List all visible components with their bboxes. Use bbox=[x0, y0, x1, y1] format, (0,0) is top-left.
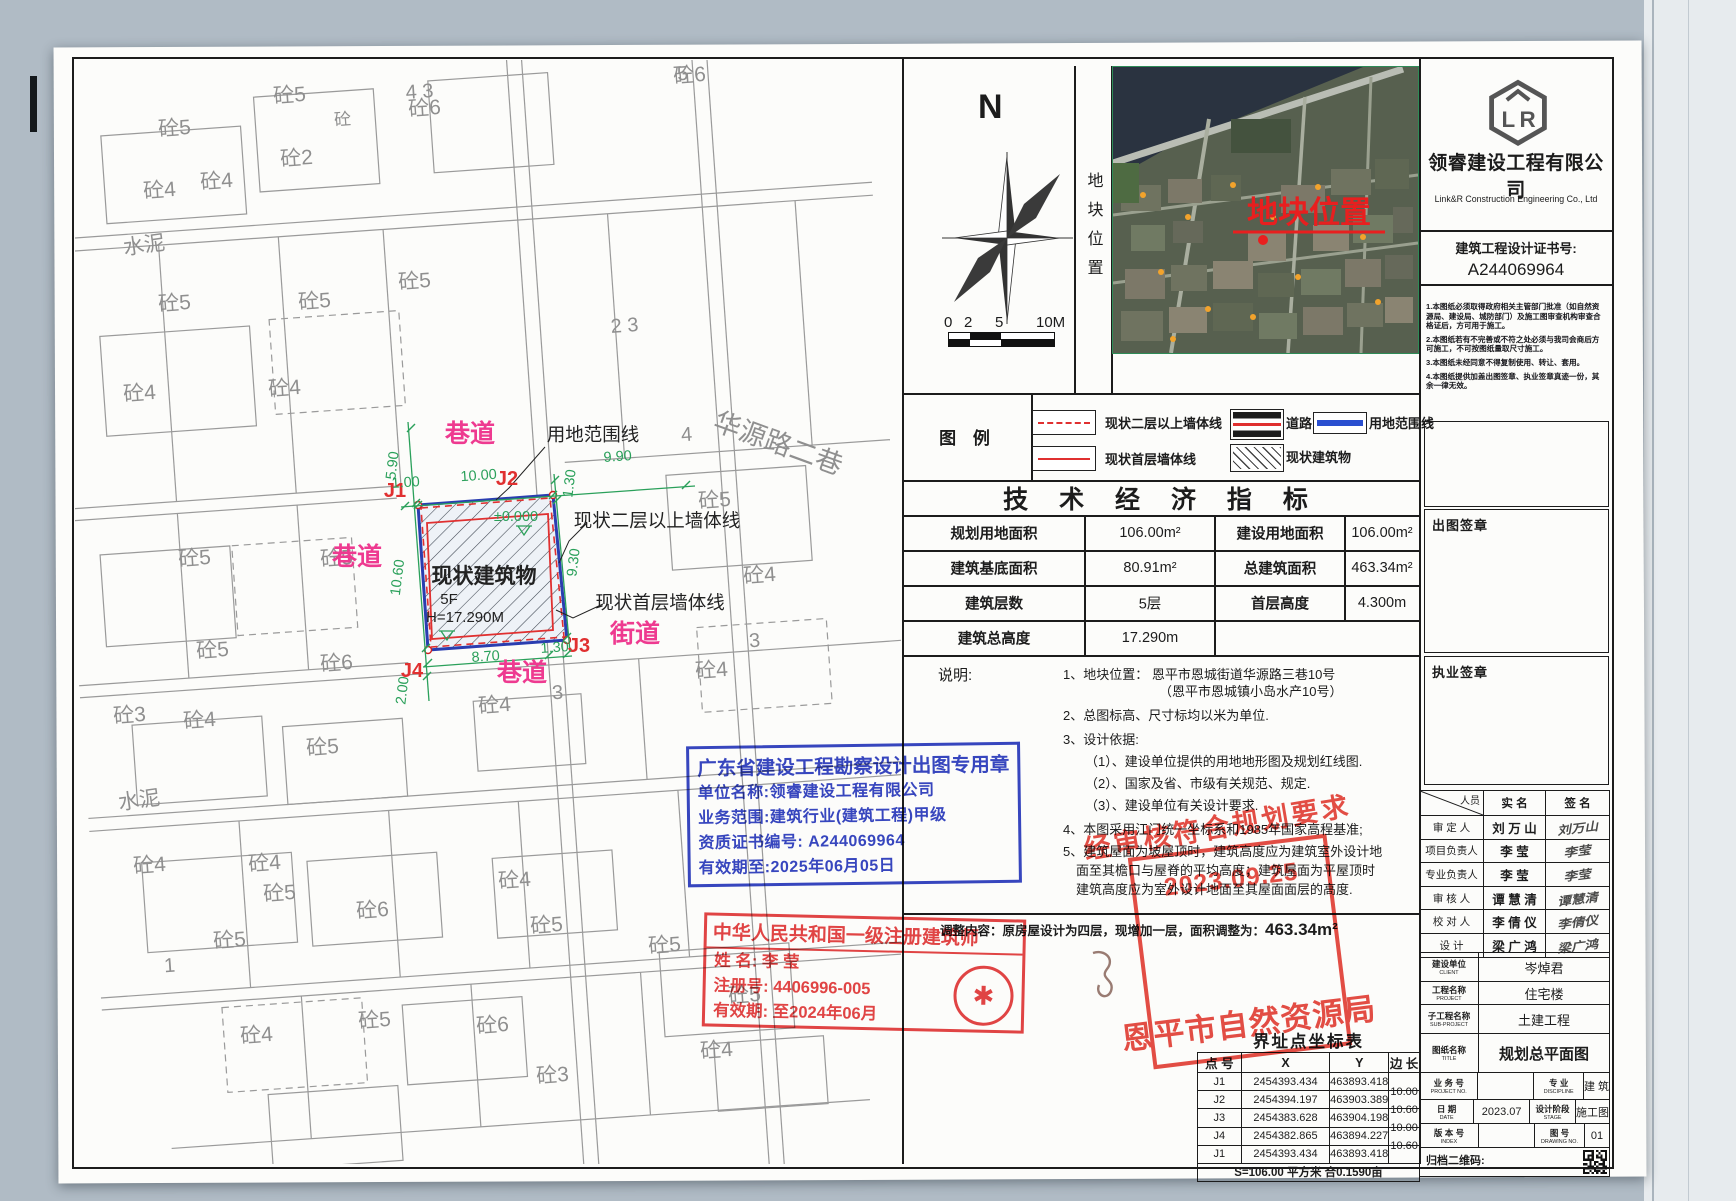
plot-label: 砼4 bbox=[477, 693, 512, 718]
blank-box bbox=[1424, 421, 1609, 507]
zhiye-seal-box: 执业签章 bbox=[1424, 656, 1609, 785]
plot-label: 水泥 bbox=[117, 786, 162, 815]
general-note: 3.本图纸未经同意不得复制使用、转让、套用。 bbox=[1426, 358, 1606, 368]
plot-label: 砼5 bbox=[157, 291, 191, 316]
coord-footer: S=106.00 平方米 合0.1590亩 bbox=[1198, 1164, 1419, 1181]
plot-label: 砼4 bbox=[132, 853, 167, 878]
coord-cell: J1 bbox=[1198, 1146, 1241, 1163]
coord-cell: J1 bbox=[1198, 1073, 1241, 1090]
coord-cell: 2454393.434 bbox=[1241, 1073, 1329, 1090]
indicator-label: 建设用地面积 bbox=[1237, 522, 1324, 543]
coord-header: 边 长 bbox=[1388, 1053, 1419, 1072]
coord-footer-row: S=106.00 平方米 合0.1590亩 bbox=[1198, 1163, 1419, 1181]
indicator-value: 17.290m bbox=[1122, 630, 1178, 646]
coord-cell: 463893.418 bbox=[1329, 1146, 1388, 1163]
plot-label: 砼5 bbox=[357, 1008, 391, 1033]
grid-line bbox=[1420, 230, 1612, 232]
design-note-line: （2）、国家及省、市级有关规范、规定. bbox=[1085, 775, 1419, 792]
legend-swatch-red-solid bbox=[1032, 446, 1096, 471]
legend-label: 现状首层墙体线 bbox=[1105, 449, 1196, 468]
indicator-label: 建筑总高度 bbox=[958, 627, 1031, 648]
design-note-line: （1）、建设单位提供的用地地形图及规划红线图. bbox=[1085, 753, 1419, 770]
svg-text:L: L bbox=[1502, 107, 1516, 132]
personnel-signature: 刘万山 bbox=[1545, 815, 1609, 839]
general-note: 1.本图纸必须取得政府相关主管部门批准（如自然资源局、建设局、城防部门）及施工图… bbox=[1426, 302, 1606, 331]
plot-label: 砼5 bbox=[397, 269, 431, 294]
street-label: 街道 bbox=[609, 619, 660, 648]
coord-cell: 463893.418 bbox=[1329, 1073, 1388, 1090]
plot-label: 砼5 bbox=[177, 546, 211, 571]
boundary-point-label: J2 bbox=[496, 468, 518, 490]
legend-label: 用地范围线 bbox=[1369, 413, 1434, 432]
coord-cell: J3 bbox=[1198, 1109, 1241, 1126]
callout-label: 用地范围线 bbox=[547, 424, 640, 445]
notes-label: 说明: bbox=[938, 664, 972, 685]
personnel-name: 李 莹 bbox=[1483, 839, 1545, 863]
plot-label: 砼3 bbox=[535, 1063, 569, 1088]
plot-label: 砼5 bbox=[157, 116, 191, 141]
general-notes: 1.本图纸必须取得政府相关主管部门批准（如自然资源局、建设局、城防部门）及施工图… bbox=[1426, 302, 1606, 395]
indicator-label: 规划用地面积 bbox=[951, 522, 1038, 543]
indicator-label: 总建筑面积 bbox=[1244, 557, 1317, 578]
personnel-name: 李 倩 仪 bbox=[1483, 909, 1545, 933]
cert-number: A244069964 bbox=[1420, 258, 1612, 282]
indicator-value: 5层 bbox=[1139, 592, 1162, 613]
personnel-name: 刘 万 山 bbox=[1483, 815, 1545, 839]
dimension-tick bbox=[682, 481, 690, 489]
plot-label: 砼4 bbox=[267, 376, 302, 401]
company-name: 领睿建设工程有限公司 bbox=[1420, 162, 1612, 188]
plot-label: 砼4 bbox=[694, 658, 729, 683]
legend-swatch-blue-line bbox=[1313, 412, 1367, 434]
dimension-label: 9.90 bbox=[603, 448, 632, 466]
indicator-label: 首层高度 bbox=[1251, 592, 1309, 613]
plot-label: 砼6 bbox=[319, 651, 353, 676]
plot-label: 砼6 bbox=[475, 1013, 509, 1038]
indicator-value: 463.34m² bbox=[1351, 560, 1412, 576]
coord-row: J12454393.434463893.418 bbox=[1198, 1072, 1419, 1090]
title-block-row: 图纸名称TITLE 规划总平面图 bbox=[1420, 1033, 1609, 1072]
street-label: 巷道 bbox=[331, 542, 382, 571]
architect-stamp: 中华人民共和国一级注册建筑师 姓 名: 李 莹注册号: 4406996-005有… bbox=[702, 912, 1027, 1033]
plot-label: 4 bbox=[680, 424, 693, 447]
chutu-seal-box: 出图签章 bbox=[1424, 509, 1609, 653]
building-name-label: 现状建筑物 bbox=[432, 564, 537, 588]
grid-line bbox=[903, 620, 1420, 622]
callout-label: 现状二层以上墙体线 bbox=[574, 510, 741, 531]
general-note: 4.本图纸提供加盖出图签章、执业签章真迹一份，其余一律无效。 bbox=[1426, 372, 1606, 391]
plot-label: 砼4 bbox=[497, 868, 532, 893]
approval-date: 2023.09.25 bbox=[1134, 854, 1328, 906]
dimension-label: 1.00 bbox=[391, 474, 420, 492]
indicator-value: 106.00m² bbox=[1351, 525, 1412, 541]
cert-label: 建筑工程设计证书号: bbox=[1420, 238, 1612, 256]
personnel-name: 李 莹 bbox=[1483, 862, 1545, 886]
plot-label: 砼5 bbox=[647, 933, 681, 958]
general-note: 2.本图纸若有不完善或不符之处必须与我司会商后方可施工，不可按图纸量取尺寸施工。 bbox=[1426, 335, 1606, 354]
personnel-signature: 谭慧清 bbox=[1545, 886, 1609, 910]
legend-swatch-red-dashed bbox=[1032, 410, 1096, 435]
dimension-label: 2.00 bbox=[393, 676, 412, 706]
scanned-site-plan-sheet: 砼5砼5砼6砼砼65砼4砼4砼2水泥砼5砼5砼5砼4砼44 32 3砼5砼5砼5… bbox=[0, 0, 1736, 1201]
coord-row: J22454394.197463903.38910.00 bbox=[1198, 1090, 1419, 1108]
dimension-label: 10.00 bbox=[460, 467, 497, 485]
paper-fold-line bbox=[1652, 0, 1654, 1201]
legend-items: 现状二层以上墙体线现状首层墙体线道路用地范围线现状建筑物 bbox=[903, 393, 1420, 480]
title-block-row: 建设单位CLIENT 岑焯君 bbox=[1420, 953, 1609, 981]
grid-line bbox=[1420, 284, 1612, 286]
title-block-row: 工程名称PROJECT 住宅楼 bbox=[1420, 981, 1609, 1004]
personnel-role: 专业负责人 bbox=[1420, 862, 1483, 886]
dimension-label: 8.70 bbox=[471, 648, 500, 666]
plot-label: 砼4 bbox=[699, 1038, 734, 1063]
title-block-row: 子工程名称SUB-PROJECT 土建工程 bbox=[1420, 1004, 1609, 1033]
dimension-label: 1.30 bbox=[540, 639, 569, 657]
paper-fold-line-2 bbox=[1688, 0, 1689, 1201]
company-logo-icon: L R bbox=[1478, 76, 1558, 156]
legend-label: 现状二层以上墙体线 bbox=[1105, 413, 1222, 432]
indicators-title: 技 术 经 济 指 标 bbox=[903, 480, 1420, 515]
legend-label: 道路 bbox=[1286, 413, 1312, 432]
legend-label: 现状建筑物 bbox=[1286, 447, 1351, 466]
background-right-band bbox=[1644, 0, 1736, 1201]
plot-label: 砼5 bbox=[529, 913, 563, 938]
plot-label: 2 3 bbox=[610, 314, 639, 338]
archive-qr-code bbox=[1583, 1150, 1607, 1174]
coord-cell: 463903.389 bbox=[1329, 1091, 1388, 1108]
plot-label: 5 bbox=[676, 63, 689, 86]
legend: 图 例 现状二层以上墙体线现状首层墙体线道路用地范围线现状建筑物 bbox=[903, 393, 1420, 480]
approval-stamp: 2023.09.25 恩平市自然资源局 bbox=[1128, 834, 1352, 1070]
personnel-name: 谭 慧 清 bbox=[1483, 886, 1545, 910]
grid-line bbox=[903, 585, 1420, 587]
indicator-label: 建筑层数 bbox=[965, 592, 1023, 613]
plot-label: 砼3 bbox=[112, 703, 146, 728]
zhiye-seal-label: 执业签章 bbox=[1432, 662, 1488, 681]
boundary-point-label: J3 bbox=[568, 635, 590, 657]
coord-cell: 2454383.628 bbox=[1241, 1109, 1329, 1126]
blue-design-stamp: 广东省建设工程勘察设计出图专用章 单位名称:领睿建设工程有限公司业务范围:建筑行… bbox=[686, 742, 1022, 888]
plot-label: 砼5 bbox=[297, 289, 331, 314]
indicator-label: 建筑基底面积 bbox=[951, 557, 1038, 578]
plot-label: 砼4 bbox=[239, 1023, 274, 1048]
plot-label: 砼4 bbox=[142, 178, 177, 203]
coord-cell: 463894.227 bbox=[1329, 1128, 1388, 1145]
coord-row: J42454382.865463894.22710.00 bbox=[1198, 1127, 1419, 1145]
blue-stamp-line: 有效期至:2025年06月05日 bbox=[699, 852, 1011, 881]
handwritten-mark bbox=[1085, 945, 1127, 1005]
title-block-grid-row: 版 本 号INDEX 图 号DRAWING NO. 01 bbox=[1420, 1123, 1609, 1147]
blue-stamp-title: 广东省建设工程勘察设计出图专用章 bbox=[697, 748, 1009, 781]
plot-label: 砼6 bbox=[355, 898, 389, 923]
coord-cell: 2454382.865 bbox=[1241, 1128, 1329, 1145]
plot-label: 4 3 bbox=[405, 80, 434, 104]
building-level-label: ±0.000 bbox=[494, 509, 538, 525]
grid-line bbox=[1344, 515, 1346, 620]
personnel-role: 校 对 人 bbox=[1420, 909, 1483, 933]
plot-label: 砼2 bbox=[279, 146, 313, 171]
plot-label: 砼 bbox=[333, 109, 351, 129]
plot-label: 砼4 bbox=[182, 708, 217, 733]
plot-label: 砼5 bbox=[305, 735, 339, 760]
design-note-line: 1、地块位置： 恩平市恩城街道华源路三巷10号 bbox=[1063, 666, 1419, 683]
title-block-grid-row: 日 期DATE 2023.07 设计阶段STAGE 施工图 bbox=[1420, 1099, 1609, 1123]
coord-header: Y bbox=[1329, 1053, 1388, 1072]
indicator-value: 106.00m² bbox=[1119, 525, 1180, 541]
company-name-en: Link&R Construction Engineering Co., Ltd bbox=[1420, 192, 1612, 206]
north-label: N bbox=[978, 88, 1003, 127]
coord-cell: 2454394.197 bbox=[1241, 1091, 1329, 1108]
personnel-header-name: 实 名 bbox=[1483, 791, 1545, 815]
grid-line bbox=[903, 655, 1420, 657]
plot-label: 砼5 bbox=[212, 928, 246, 953]
qr-row: 归档二维码: bbox=[1420, 1147, 1609, 1176]
building-floors-label: 5F bbox=[440, 591, 458, 608]
coord-cell: J4 bbox=[1198, 1128, 1241, 1145]
coord-cell: 463904.198 bbox=[1329, 1109, 1388, 1126]
satellite-map: 地块位置 bbox=[1112, 66, 1419, 354]
chutu-seal-label: 出图签章 bbox=[1432, 515, 1488, 534]
title-block-grid-row: 业 务 号PROJECT NO. 专 业DISCIPLINE 建 筑 bbox=[1420, 1072, 1609, 1099]
street-label: 巷道 bbox=[496, 658, 547, 687]
indicator-value: 4.300m bbox=[1358, 595, 1406, 611]
personnel-header-sig: 签 名 bbox=[1545, 791, 1609, 815]
site-marker-dot bbox=[1258, 235, 1268, 245]
scan-edge-mark bbox=[30, 76, 37, 132]
dimension-label: 1.30 bbox=[560, 469, 579, 499]
site-location-map-label: 地块位置 bbox=[1247, 195, 1371, 230]
plot-label: 砼4 bbox=[122, 381, 157, 406]
personnel-signature: 李莹 bbox=[1545, 839, 1609, 863]
street-label: 巷道 bbox=[444, 419, 495, 448]
plot-label: 砼5 bbox=[272, 83, 306, 108]
personnel-role: 项目负责人 bbox=[1420, 839, 1483, 863]
personnel-signature: 李倩仪 bbox=[1545, 909, 1609, 933]
scale-bar: 0 2 5 10M bbox=[940, 314, 1070, 347]
plot-label: 砼4 bbox=[199, 169, 234, 194]
title-block: 建设单位CLIENT 岑焯君工程名称PROJECT 住宅楼子工程名称SUB-PR… bbox=[1419, 952, 1610, 1177]
grid-line bbox=[903, 550, 1420, 552]
plot-label: 砼4 bbox=[742, 563, 777, 588]
location-strip: 地块位置 bbox=[1074, 66, 1111, 393]
plot-label: 3 bbox=[748, 630, 761, 653]
plot-label: 砼5 bbox=[195, 638, 229, 663]
plot-label: 砼5 bbox=[262, 881, 296, 906]
legend-swatch-road bbox=[1230, 409, 1284, 440]
building-height-label: H=17.290M bbox=[426, 609, 504, 626]
design-note-line: 3、设计依据: bbox=[1063, 731, 1419, 748]
plot-label: 3 bbox=[551, 682, 564, 705]
personnel-header-corner: 人员 bbox=[1420, 791, 1483, 815]
coord-cell: J2 bbox=[1198, 1091, 1241, 1108]
design-note-line: 2、总图标高、尺寸标均以米为单位. bbox=[1063, 707, 1419, 724]
plot-label: 1 bbox=[163, 955, 176, 978]
design-note-line: （恩平市恩城镇小岛水产10号） bbox=[1159, 683, 1419, 700]
dimension-label: 9.30 bbox=[564, 548, 583, 578]
compass-rose-icon bbox=[940, 148, 1075, 328]
svg-text:R: R bbox=[1520, 107, 1536, 132]
coord-cell: 10.60 bbox=[1388, 1146, 1419, 1163]
coord-cell: 2454393.434 bbox=[1241, 1146, 1329, 1163]
personnel-table: 人员实 名签 名审 定 人刘 万 山刘万山项目负责人李 莹李莹专业负责人李 莹李… bbox=[1419, 790, 1610, 958]
plot-label: 砼4 bbox=[247, 851, 282, 876]
indicator-value: 80.91m² bbox=[1123, 560, 1176, 576]
callout-label: 现状首层墙体线 bbox=[595, 592, 725, 613]
dimension-label: 10.60 bbox=[388, 559, 408, 597]
qr-label: 归档二维码: bbox=[1420, 1148, 1485, 1176]
coord-row: J12454393.434463893.41810.60 bbox=[1198, 1145, 1419, 1163]
personnel-role: 审 核 人 bbox=[1420, 886, 1483, 910]
coord-row: J32454383.628463904.19810.60 bbox=[1198, 1108, 1419, 1126]
personnel-signature: 李莹 bbox=[1545, 862, 1609, 886]
legend-swatch-hatch bbox=[1230, 444, 1284, 472]
personnel-role: 审 定 人 bbox=[1420, 815, 1483, 839]
